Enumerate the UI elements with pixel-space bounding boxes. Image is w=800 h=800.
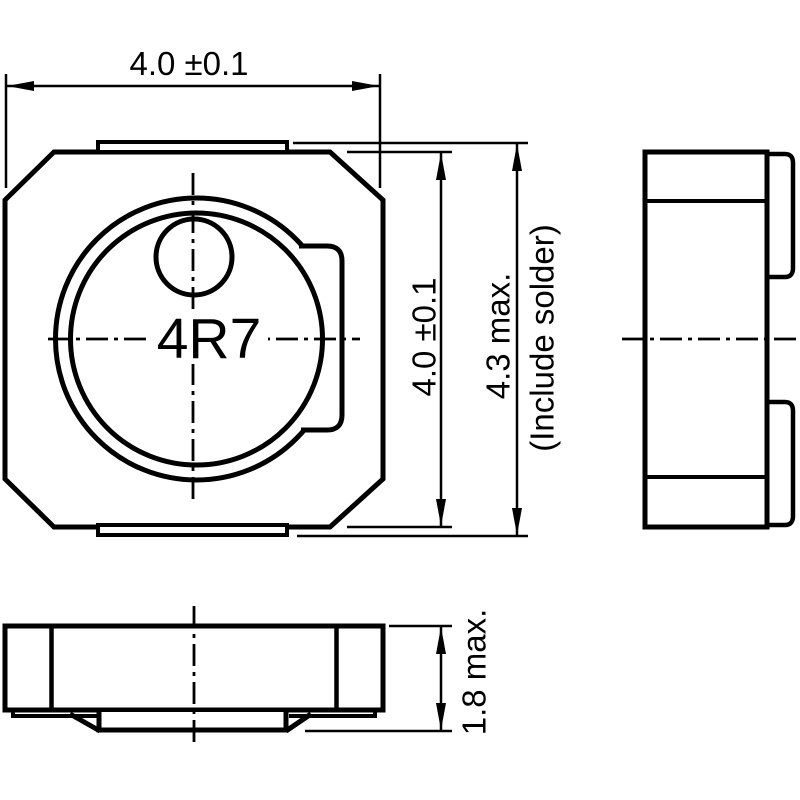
bottom-terminal-tab (98, 525, 287, 535)
front-view (5, 606, 383, 748)
side-view (622, 152, 797, 527)
top-view: 4R7 (5, 142, 383, 535)
dim-top-width-label: 4.0 ±0.1 (129, 45, 248, 82)
dim-thickness-label: 1.8 max. (456, 609, 493, 736)
side-view-bottom-terminal (767, 402, 793, 525)
arrowhead-down (436, 703, 446, 730)
dim-solder-height-note: (Include solder) (524, 224, 561, 451)
arrowhead-up (512, 144, 522, 171)
arrowhead-right (352, 81, 379, 91)
arrowhead-up (436, 153, 446, 180)
arrowhead-up (436, 627, 446, 654)
inductor-dimension-drawing: 4R7 4.0 ±0.1 4.0 ±0.1 4.3 max. (Include … (0, 0, 800, 800)
dim-body-height-label: 4.0 ±0.1 (406, 277, 443, 396)
side-view-top-terminal (767, 154, 793, 277)
front-view-center-protrusion (99, 712, 286, 730)
top-terminal-tab (98, 142, 287, 152)
dim-solder-height-label: 4.3 max. (480, 273, 517, 400)
arrowhead-down (512, 508, 522, 535)
drawing-canvas: 4R7 4.0 ±0.1 4.0 ±0.1 4.3 max. (Include … (0, 0, 800, 800)
component-marking: 4R7 (157, 307, 262, 371)
arrowhead-left (7, 81, 34, 91)
arrowhead-down (436, 499, 446, 526)
